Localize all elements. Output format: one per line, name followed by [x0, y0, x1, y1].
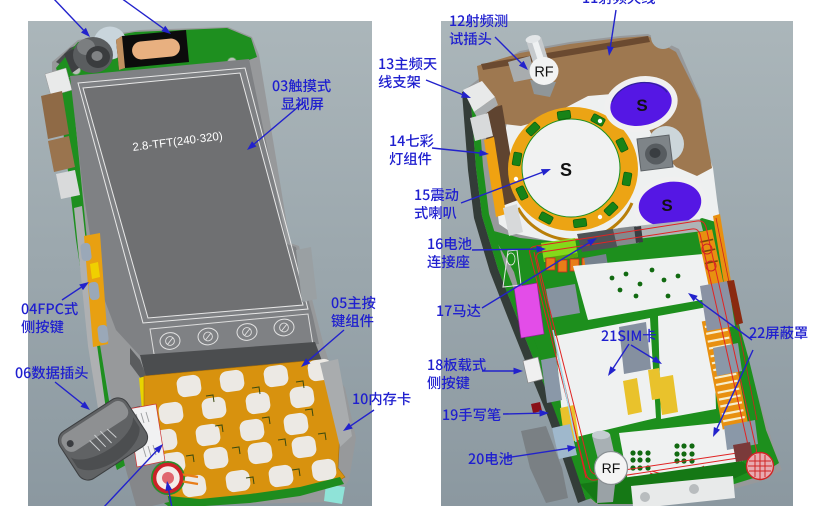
svg-text:S: S: [661, 196, 672, 215]
svg-text:RF: RF: [534, 65, 553, 81]
svg-text:S: S: [636, 96, 647, 115]
svg-text:S: S: [560, 160, 572, 180]
svg-text:RF: RF: [602, 460, 621, 476]
